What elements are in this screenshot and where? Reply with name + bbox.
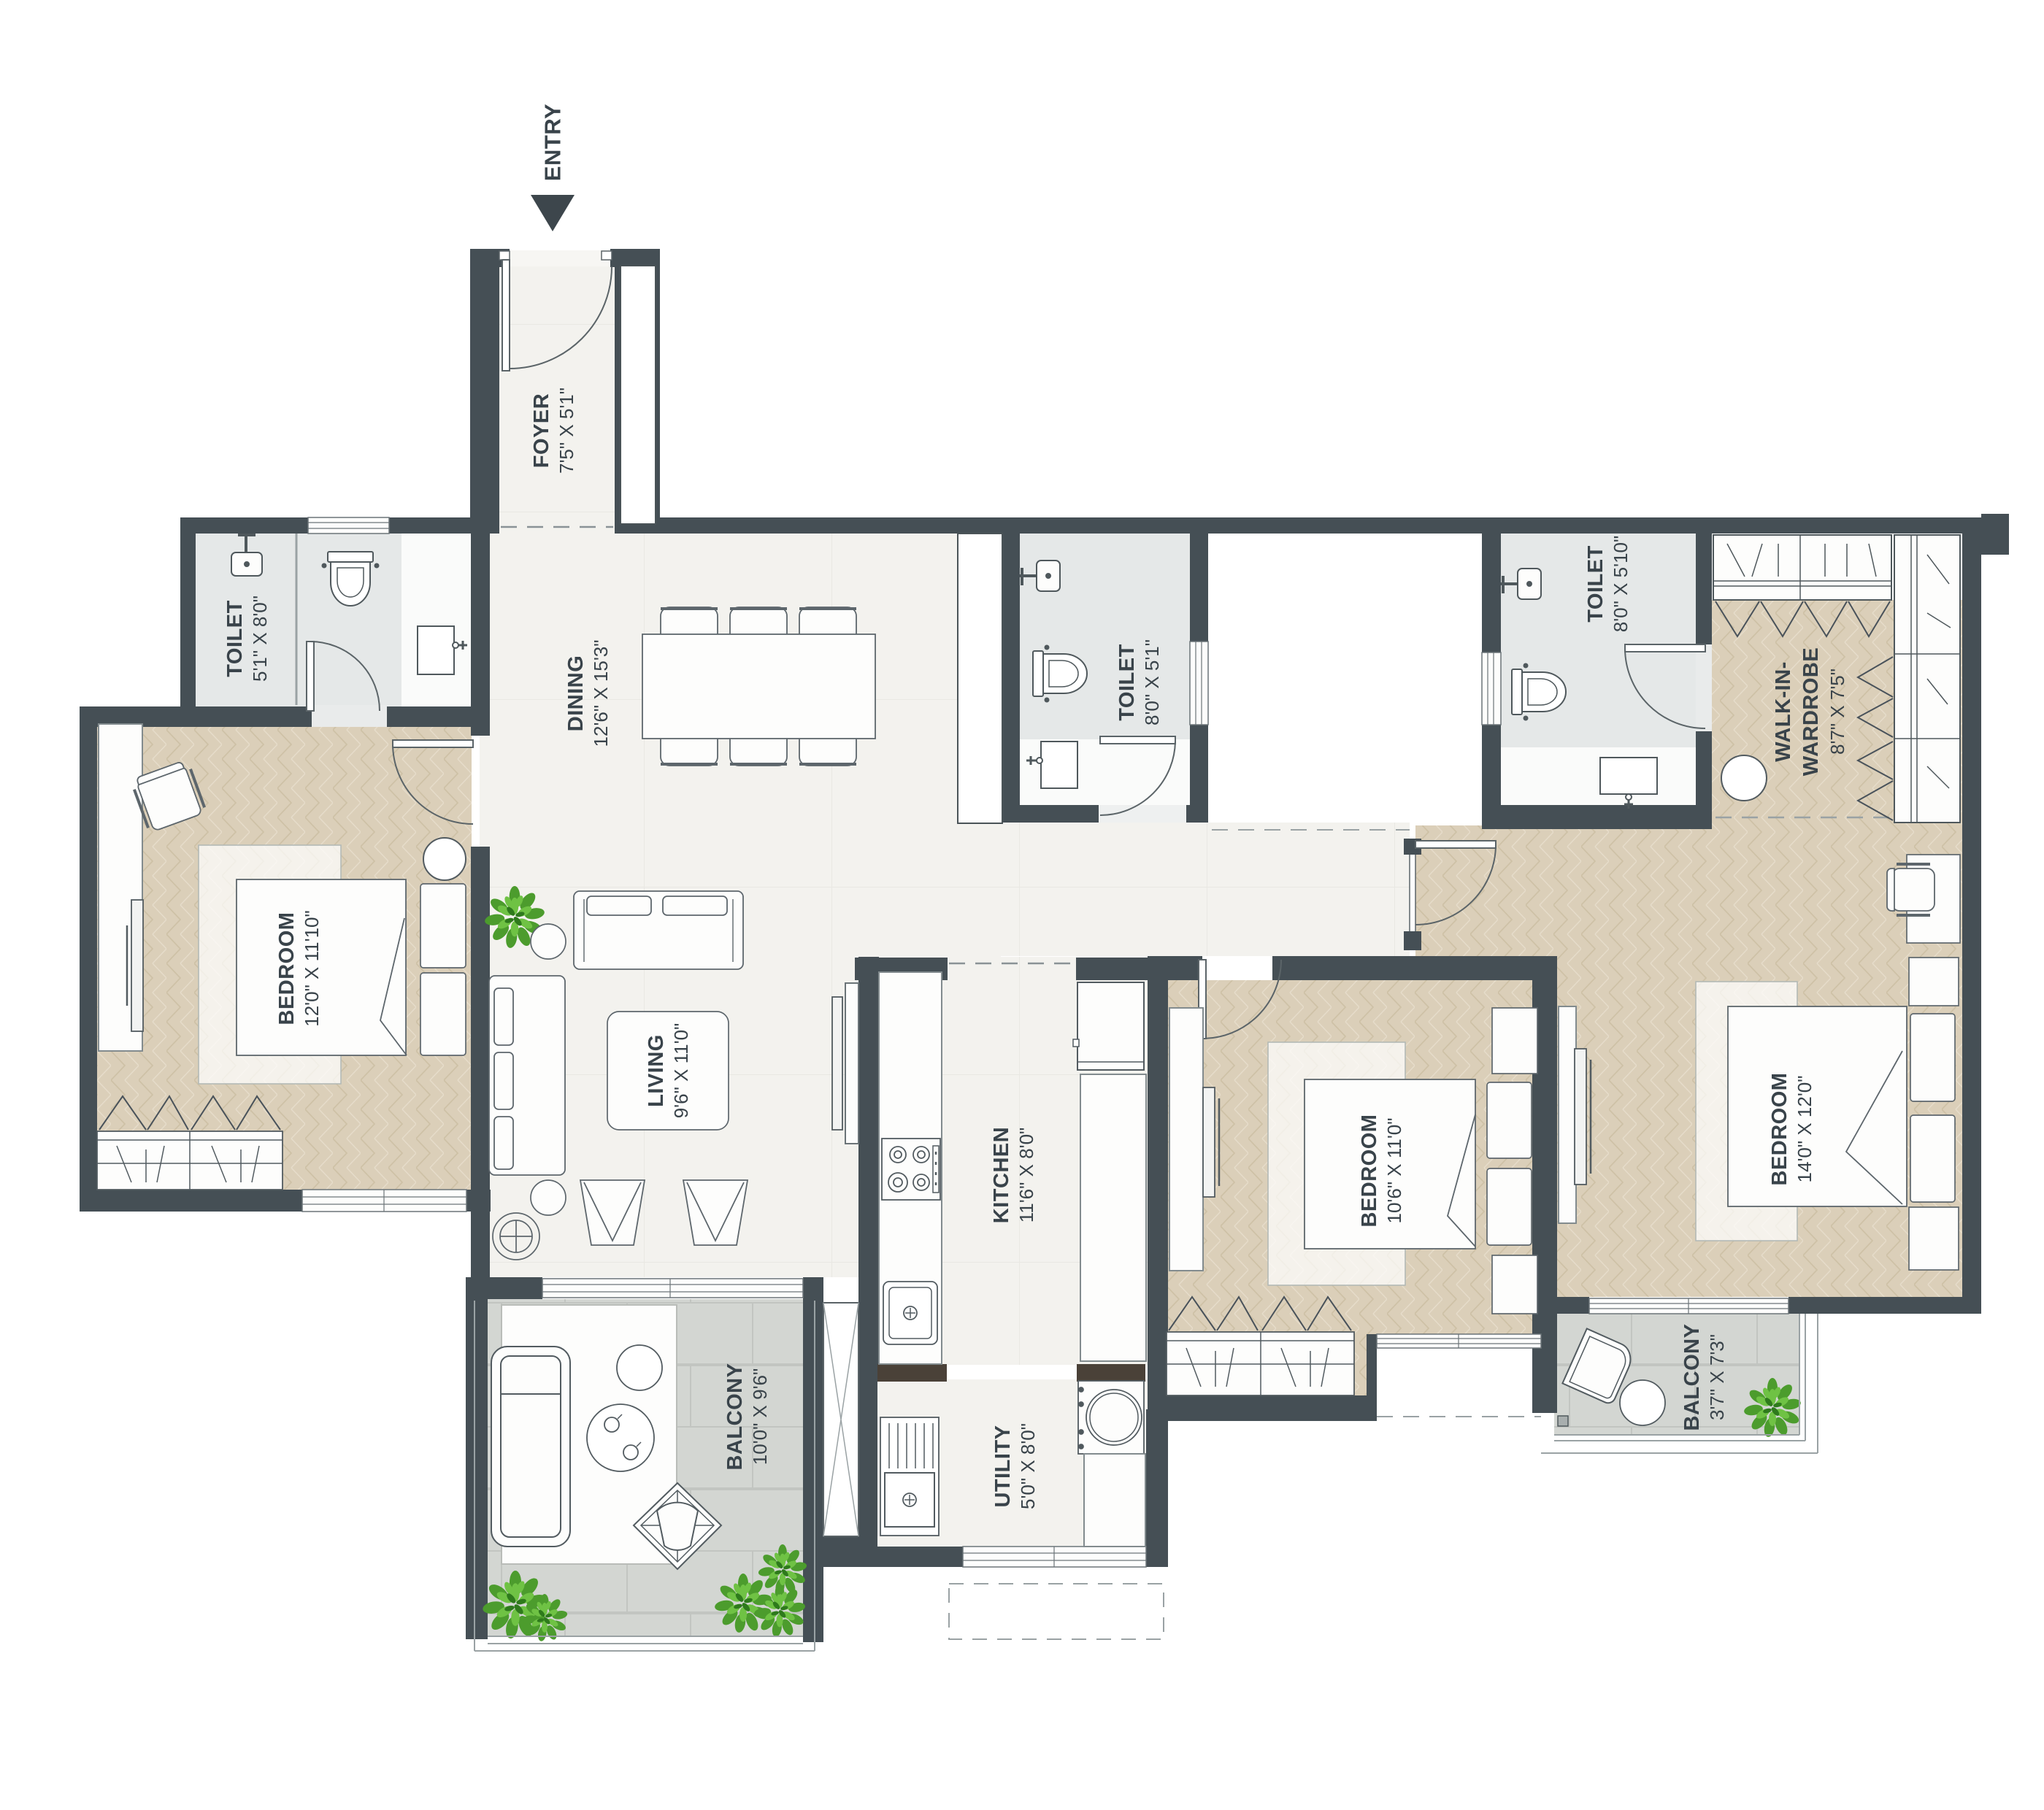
svg-text:FOYER: FOYER (530, 393, 553, 468)
svg-text:LIVING: LIVING (645, 1034, 668, 1107)
svg-text:WARDROBE: WARDROBE (1799, 647, 1823, 776)
svg-text:BEDROOM: BEDROOM (1768, 1073, 1791, 1186)
svg-text:ENTRY: ENTRY (540, 104, 566, 181)
svg-text:5'0" X 8'0": 5'0" X 8'0" (1017, 1423, 1039, 1509)
svg-text:14'0" X 12'0": 14'0" X 12'0" (1794, 1076, 1816, 1183)
svg-text:3'7" X 7'3": 3'7" X 7'3" (1706, 1334, 1728, 1420)
svg-text:TOILET: TOILET (1584, 545, 1607, 623)
svg-text:BALCONY: BALCONY (723, 1363, 747, 1471)
svg-text:BEDROOM: BEDROOM (1358, 1114, 1381, 1228)
svg-text:WALK-IN-: WALK-IN- (1772, 661, 1795, 762)
svg-text:9'6" X 11'0": 9'6" X 11'0" (670, 1023, 692, 1119)
svg-text:12'6" X 15'3": 12'6" X 15'3" (590, 640, 612, 747)
svg-text:8'0" X 5'1": 8'0" X 5'1" (1141, 639, 1163, 725)
svg-text:8'0" X 5'10": 8'0" X 5'10" (1610, 536, 1632, 632)
svg-text:UTILITY: UTILITY (991, 1425, 1015, 1507)
svg-text:BALCONY: BALCONY (1680, 1324, 1704, 1431)
svg-text:10'0" X 9'6": 10'0" X 9'6" (749, 1368, 771, 1465)
svg-text:8'7" X 7'5": 8'7" X 7'5" (1826, 669, 1848, 755)
svg-text:DINING: DINING (564, 655, 588, 732)
svg-text:BEDROOM: BEDROOM (275, 912, 299, 1025)
svg-text:7'5" X 5'1": 7'5" X 5'1" (556, 388, 577, 474)
svg-text:TOILET: TOILET (223, 600, 247, 677)
svg-text:12'0" X 11'10": 12'0" X 11'10" (301, 910, 323, 1026)
svg-text:TOILET: TOILET (1115, 644, 1139, 721)
svg-text:11'6" X 8'0": 11'6" X 8'0" (1015, 1128, 1037, 1223)
svg-text:5'1" X 8'0": 5'1" X 8'0" (249, 596, 271, 682)
svg-text:10'6" X 11'0": 10'6" X 11'0" (1383, 1117, 1405, 1223)
svg-text:KITCHEN: KITCHEN (990, 1127, 1013, 1223)
